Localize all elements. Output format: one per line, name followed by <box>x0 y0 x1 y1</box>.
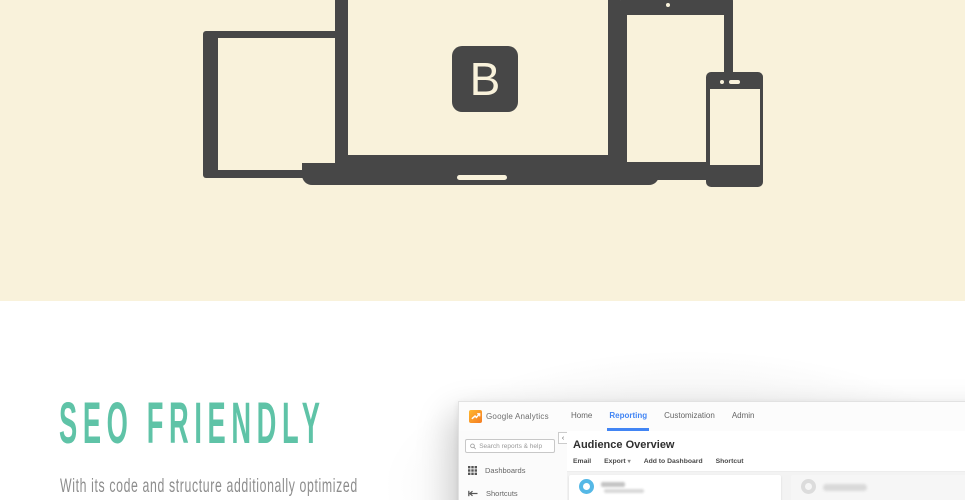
hero-section: B <box>0 0 965 301</box>
ga-tab-home[interactable]: Home <box>569 402 594 431</box>
sidebar-item-dashboards[interactable]: Dashboards <box>468 466 525 475</box>
blurred-text <box>604 489 644 493</box>
search-icon <box>470 443 476 450</box>
grid-icon <box>468 466 477 475</box>
section-paragraph: With its code and structure additionally… <box>60 475 358 498</box>
google-analytics-screenshot: Google Analytics Home Reporting Customiz… <box>458 401 965 500</box>
donut-chart-icon <box>801 479 816 494</box>
bootstrap-logo: B <box>452 46 518 112</box>
sidebar-item-label: Dashboards <box>485 466 525 475</box>
laptop-notch <box>457 175 507 180</box>
ga-tab-reporting[interactable]: Reporting <box>607 402 649 431</box>
seo-section: SEO FRIENDLY With its code and structure… <box>0 301 965 500</box>
laptop-base <box>302 163 659 185</box>
phone-screen <box>710 89 760 165</box>
sidebar-item-label: Shortcuts <box>486 489 518 498</box>
blurred-text <box>823 484 867 491</box>
bootstrap-logo-letter: B <box>470 56 501 102</box>
export-button[interactable]: Export▾ <box>604 458 631 465</box>
phone-mockup <box>706 72 763 187</box>
ga-brand-text: Google Analytics <box>486 412 549 421</box>
tablet-camera-icon <box>666 3 670 7</box>
section-title: SEO FRIENDLY <box>59 395 326 453</box>
google-analytics-logo-icon <box>469 410 482 423</box>
sidebar-item-shortcuts[interactable]: Shortcuts <box>468 489 518 498</box>
chevron-down-icon: ▾ <box>628 459 631 465</box>
desktop-monitor-mockup <box>203 31 346 178</box>
email-button[interactable]: Email <box>573 458 591 465</box>
blurred-text <box>601 482 625 487</box>
ga-search-input[interactable] <box>479 443 550 450</box>
ga-page-title: Audience Overview <box>573 439 675 451</box>
add-to-dashboard-button[interactable]: Add to Dashboard <box>644 458 703 465</box>
ga-header: Google Analytics Home Reporting Customiz… <box>459 402 965 432</box>
ga-nav: Home Reporting Customization Admin <box>569 402 770 431</box>
arrow-to-left-icon <box>468 490 478 497</box>
ga-segments-row <box>567 472 965 500</box>
phone-camera-icon <box>720 80 724 84</box>
phone-speaker-icon <box>729 80 740 84</box>
ga-main: Audience Overview Email Export▾ Add to D… <box>567 431 965 500</box>
segment-card-all-users[interactable] <box>569 475 781 500</box>
ga-search-box[interactable] <box>465 439 555 453</box>
ga-toolbar: Email Export▾ Add to Dashboard Shortcut <box>573 458 744 465</box>
ga-tab-customization[interactable]: Customization <box>662 402 717 431</box>
donut-chart-icon <box>579 479 594 494</box>
ga-sidebar: ‹ Dashboards Shortcuts <box>459 431 568 500</box>
segment-card-add-segment[interactable] <box>791 475 965 500</box>
ga-tab-admin[interactable]: Admin <box>730 402 757 431</box>
shortcut-button[interactable]: Shortcut <box>716 458 744 465</box>
page: B SEO FRIENDLY With its code and structu… <box>0 0 965 500</box>
monitor-screen <box>218 38 337 170</box>
